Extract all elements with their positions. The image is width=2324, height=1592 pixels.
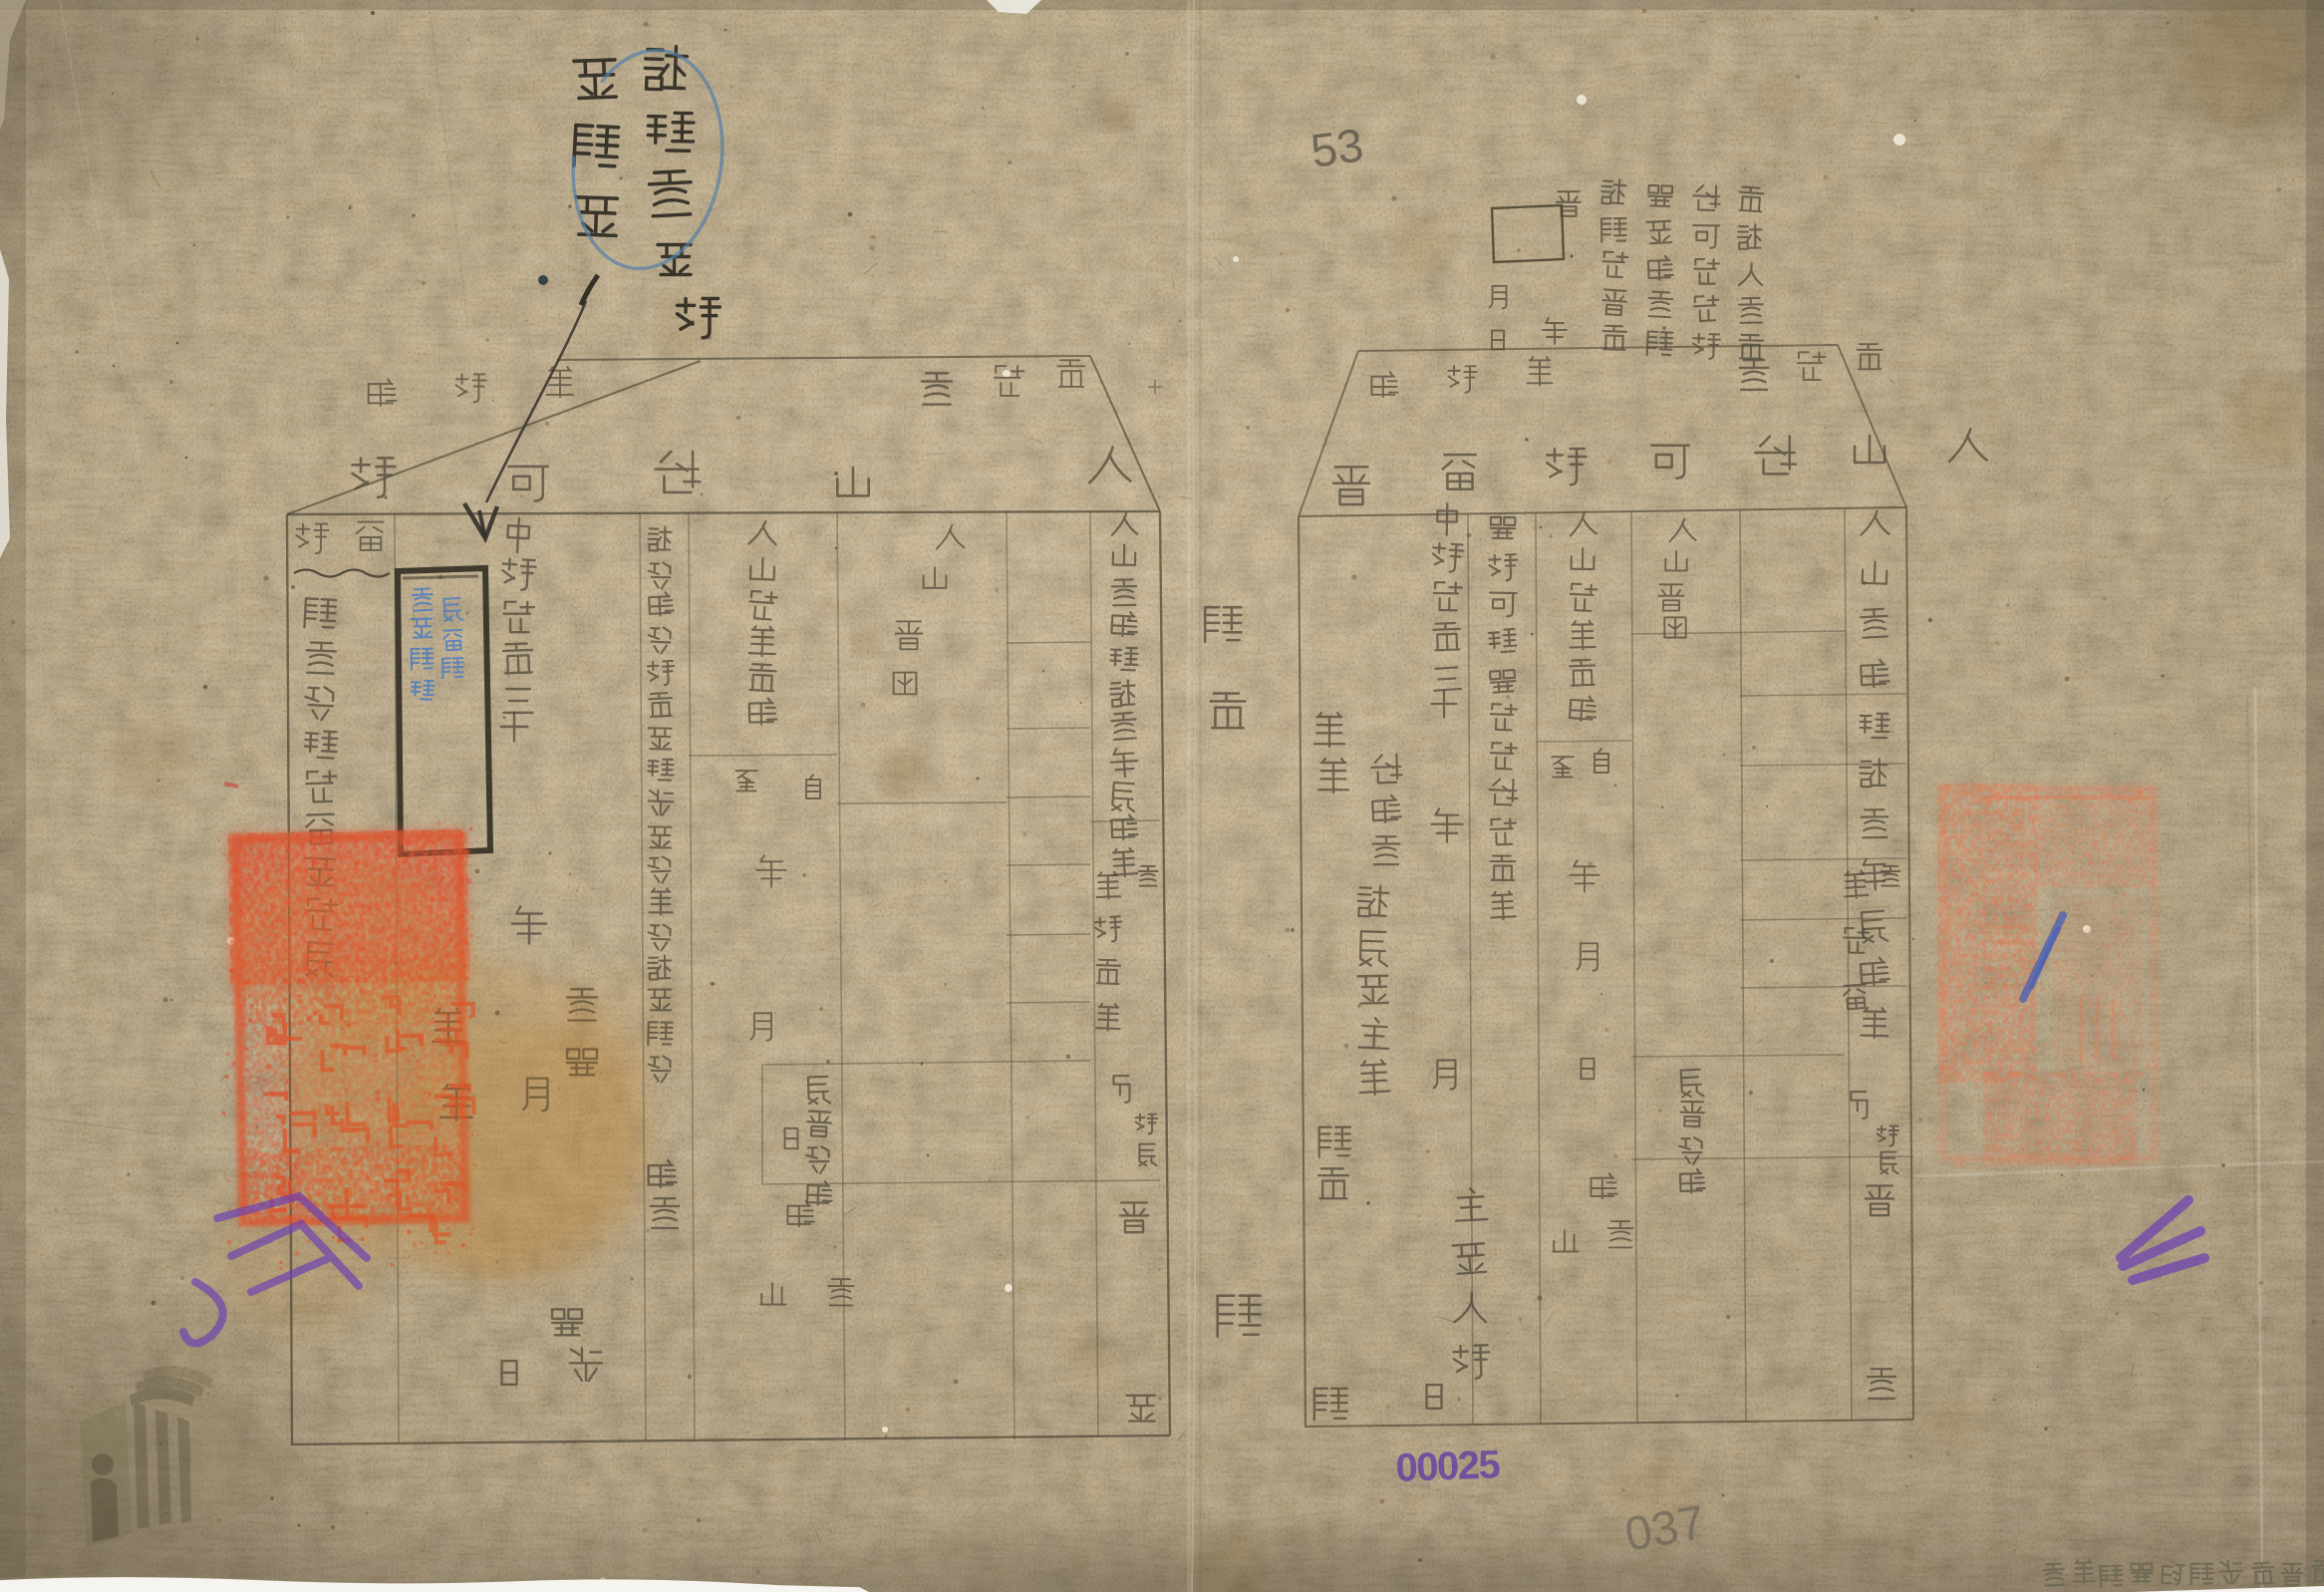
svg-text:00025: 00025 [1395,1442,1501,1490]
svg-text:53: 53 [1307,118,1366,177]
